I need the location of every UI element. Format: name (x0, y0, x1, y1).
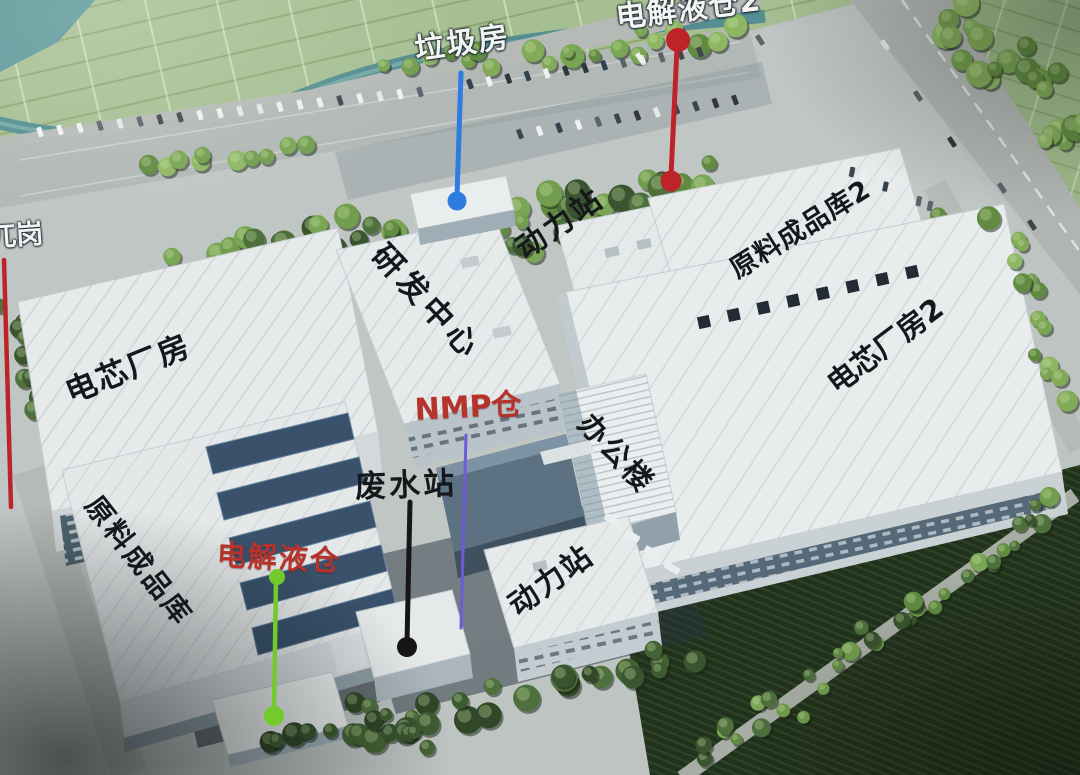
label-edge-road: 兀岗 (0, 212, 44, 255)
aerial-scene (0, 0, 1080, 775)
label-electrolyte-warehouse-1: 电解液仓 (216, 532, 342, 580)
label-wastewater-station: 废水站 (354, 458, 458, 507)
site-rendering: 兀岗 垃圾房 电解液仓2 动力站 研发中心 原料成品库2 电芯厂房2 电芯厂房 … (0, 0, 1080, 775)
label-nmp-warehouse: NMP仓 (413, 379, 522, 429)
